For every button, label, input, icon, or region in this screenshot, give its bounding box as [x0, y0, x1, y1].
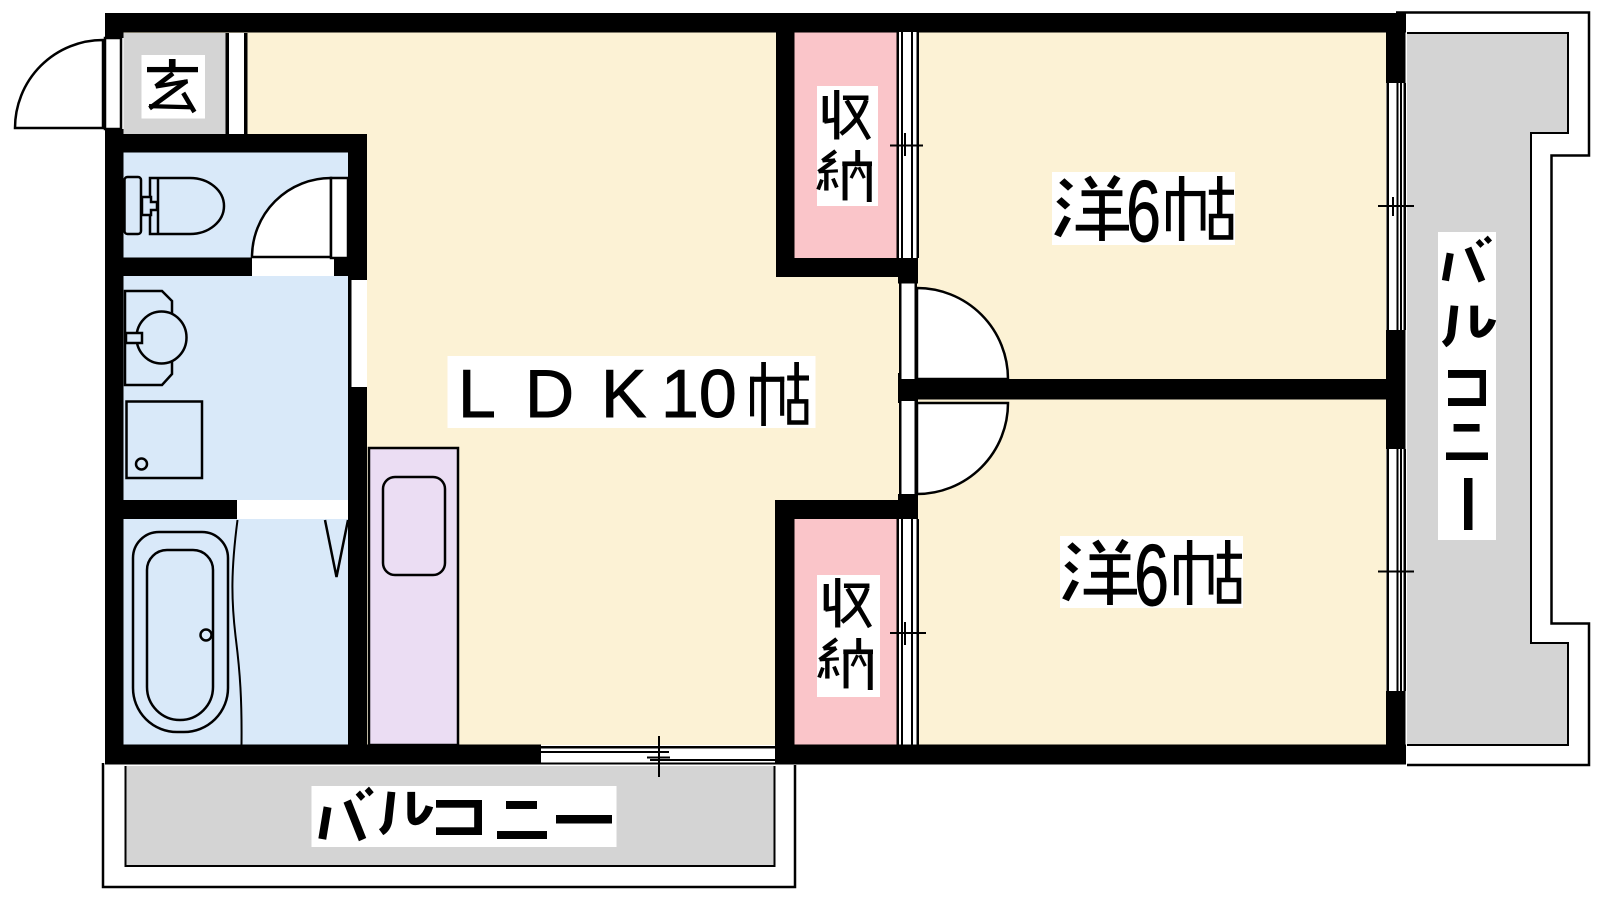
- svg-text:6: 6: [1126, 163, 1161, 261]
- svg-text:10: 10: [661, 356, 737, 432]
- svg-text:L: L: [458, 356, 496, 432]
- svg-text:6: 6: [1134, 527, 1169, 625]
- svg-text:K: K: [601, 356, 646, 432]
- svg-text:D: D: [525, 356, 574, 432]
